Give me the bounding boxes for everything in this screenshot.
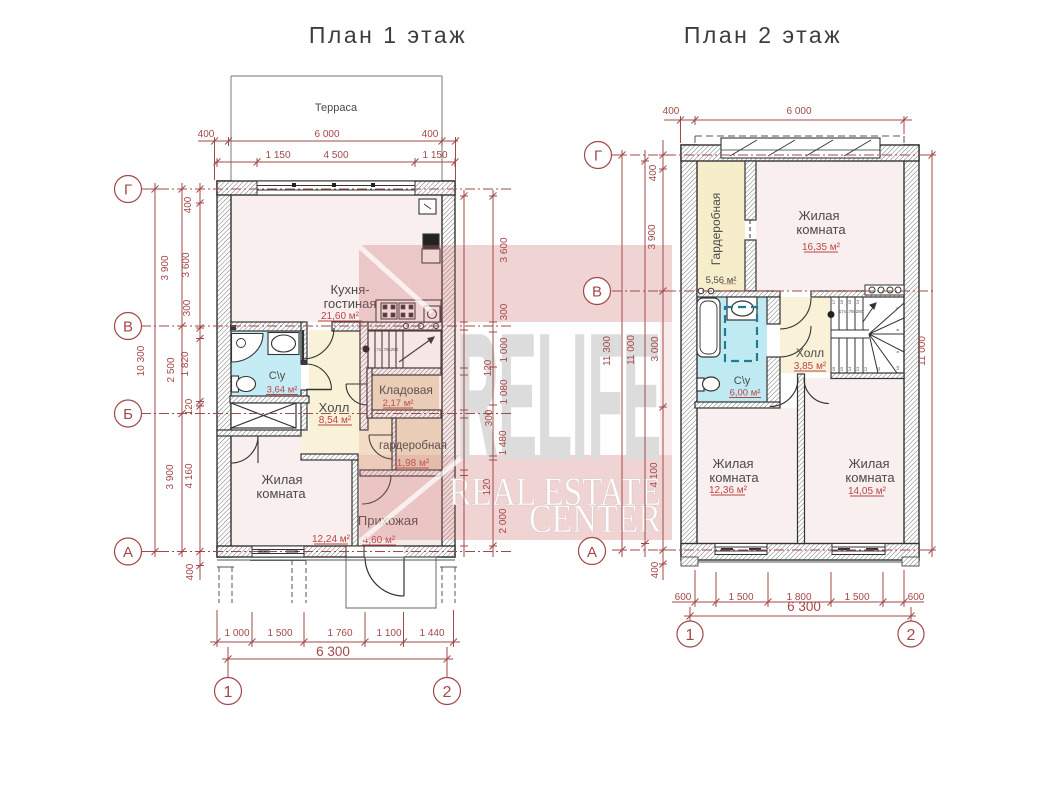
svg-text:комната: комната — [845, 470, 895, 485]
svg-text:комната: комната — [709, 470, 759, 485]
svg-text:3 600: 3 600 — [181, 252, 192, 277]
svg-text:400: 400 — [183, 196, 194, 213]
svg-text:3 600: 3 600 — [499, 237, 510, 262]
svg-text:4 160: 4 160 — [184, 463, 195, 488]
svg-text:Холл: Холл — [796, 346, 824, 360]
svg-text:600: 600 — [908, 592, 925, 603]
svg-text:400: 400 — [650, 561, 661, 578]
svg-text:1 150: 1 150 — [422, 150, 447, 161]
svg-text:1: 1 — [224, 684, 233, 701]
svg-text:300: 300 — [182, 299, 193, 316]
svg-text:2 000: 2 000 — [498, 508, 509, 533]
svg-text:16: 16 — [831, 366, 836, 371]
svg-text:11 000: 11 000 — [917, 336, 928, 366]
svg-text:14: 14 — [855, 299, 860, 304]
svg-text:Б: Б — [123, 406, 133, 423]
svg-text:4 500: 4 500 — [323, 150, 348, 161]
svg-text:11 000: 11 000 — [626, 335, 637, 365]
svg-text:Жилая: Жилая — [848, 456, 889, 471]
svg-text:17: 17 — [831, 299, 836, 304]
svg-text:RELIFE: RELIFE — [457, 297, 661, 496]
svg-text:1 080: 1 080 — [499, 379, 510, 404]
svg-text:Холл: Холл — [319, 400, 350, 415]
svg-text:1 500: 1 500 — [728, 592, 753, 603]
svg-text:3 900: 3 900 — [647, 224, 658, 249]
svg-text:11 300: 11 300 — [602, 336, 613, 366]
svg-text:В: В — [123, 319, 133, 336]
svg-text:6 000: 6 000 — [314, 129, 339, 140]
svg-text:3 900: 3 900 — [160, 255, 171, 280]
svg-text:6 300: 6 300 — [787, 599, 821, 614]
svg-text:14,05 м²: 14,05 м² — [848, 486, 887, 497]
svg-text:8,54 м²: 8,54 м² — [319, 415, 352, 426]
svg-text:10: 10 — [895, 365, 900, 370]
svg-text:400: 400 — [422, 129, 439, 140]
svg-text:1 500: 1 500 — [844, 592, 869, 603]
svg-text:21,60 м²: 21,60 м² — [321, 311, 360, 322]
svg-text:CENTER: CENTER — [529, 496, 661, 541]
svg-text:16,35 м²: 16,35 м² — [802, 242, 841, 253]
svg-text:3,85 м²: 3,85 м² — [794, 361, 827, 372]
svg-text:17x179x280: 17x179x280 — [839, 309, 864, 314]
svg-text:400: 400 — [185, 563, 196, 580]
svg-text:Г: Г — [594, 148, 602, 165]
svg-text:12,24 м²: 12,24 м² — [312, 534, 351, 545]
svg-text:1 150: 1 150 — [265, 150, 290, 161]
svg-text:12: 12 — [863, 366, 868, 371]
svg-text:300: 300 — [484, 409, 495, 426]
svg-text:120: 120 — [482, 478, 493, 495]
svg-text:12,36 м²: 12,36 м² — [709, 485, 748, 496]
svg-text:1 760: 1 760 — [327, 628, 352, 639]
svg-text:комната: комната — [796, 222, 846, 237]
svg-text:Терраса: Терраса — [315, 102, 358, 114]
svg-text:1 500: 1 500 — [267, 628, 292, 639]
svg-text:120: 120 — [184, 398, 195, 415]
svg-text:10 300: 10 300 — [136, 345, 147, 376]
svg-text:А: А — [587, 544, 597, 561]
svg-text:3 900: 3 900 — [165, 464, 176, 489]
svg-text:3,64 м²: 3,64 м² — [267, 385, 298, 396]
svg-text:Жилая: Жилая — [712, 456, 753, 471]
svg-text:комната: комната — [256, 486, 306, 501]
svg-text:15: 15 — [839, 366, 844, 371]
svg-text:С\у: С\у — [734, 375, 751, 387]
svg-text:400: 400 — [198, 129, 215, 140]
svg-text:План 1 этаж: План 1 этаж — [309, 22, 467, 48]
svg-text:Г: Г — [124, 182, 132, 199]
svg-text:600: 600 — [675, 592, 692, 603]
svg-text:Жилая: Жилая — [261, 472, 302, 487]
svg-text:4 100: 4 100 — [649, 462, 660, 487]
svg-text:1 480: 1 480 — [498, 430, 509, 455]
svg-text:1 100: 1 100 — [376, 628, 401, 639]
svg-text:С\у: С\у — [269, 370, 286, 382]
svg-text:1 000: 1 000 — [499, 337, 510, 362]
svg-text:Гардеробная: Гардеробная — [709, 193, 723, 266]
svg-text:1: 1 — [686, 627, 695, 644]
svg-text:6,00 м²: 6,00 м² — [730, 388, 761, 399]
svg-text:5,56 м²: 5,56 м² — [706, 275, 737, 286]
svg-text:В: В — [592, 284, 602, 301]
svg-text:1 440: 1 440 — [419, 628, 444, 639]
svg-text:1 820: 1 820 — [180, 351, 191, 376]
svg-text:А: А — [123, 544, 133, 561]
svg-text:13: 13 — [855, 366, 860, 371]
svg-text:300: 300 — [499, 303, 510, 320]
svg-text:6 000: 6 000 — [786, 106, 811, 117]
svg-text:Жилая: Жилая — [798, 208, 839, 223]
svg-text:16: 16 — [839, 299, 844, 304]
svg-text:3 000: 3 000 — [650, 336, 661, 361]
svg-text:15: 15 — [847, 299, 852, 304]
svg-text:120: 120 — [483, 359, 494, 376]
svg-text:2 500: 2 500 — [166, 357, 177, 382]
svg-text:14: 14 — [847, 366, 852, 371]
svg-text:400: 400 — [663, 106, 680, 117]
svg-text:План 2 этаж: План 2 этаж — [684, 22, 842, 48]
svg-text:2: 2 — [443, 684, 452, 701]
svg-text:6 300: 6 300 — [316, 644, 350, 659]
svg-text:2: 2 — [907, 627, 916, 644]
svg-text:1 000: 1 000 — [224, 628, 249, 639]
svg-text:400: 400 — [648, 164, 659, 181]
